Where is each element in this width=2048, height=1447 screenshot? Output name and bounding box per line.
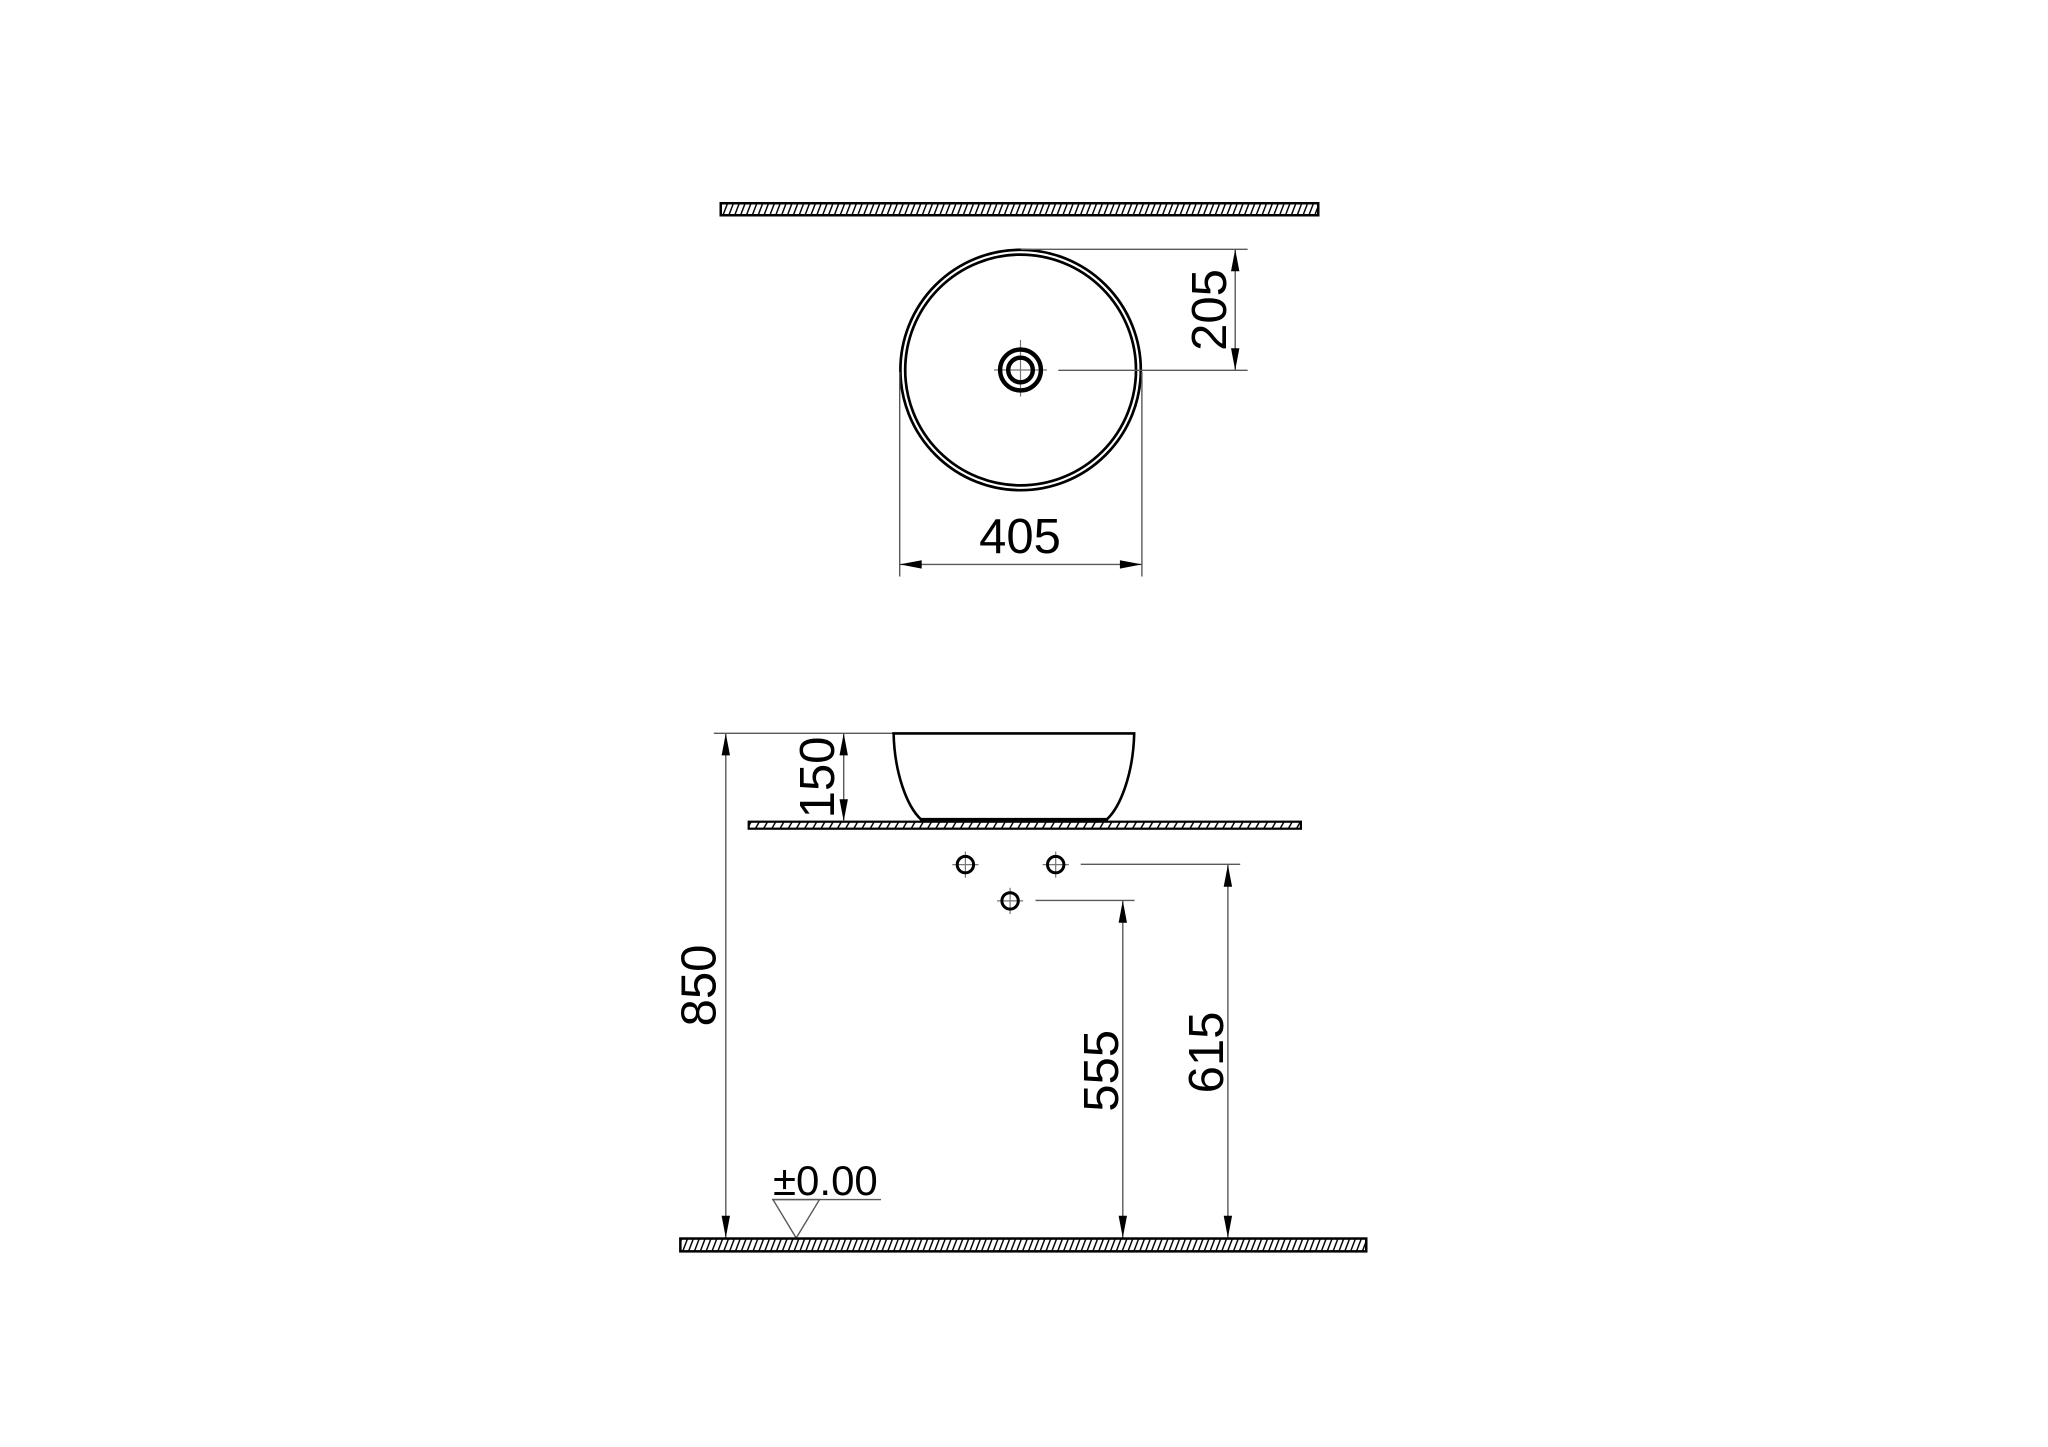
svg-text:150: 150: [791, 737, 845, 819]
svg-text:555: 555: [1075, 1030, 1129, 1112]
svg-text:±0.00: ±0.00: [773, 1157, 878, 1204]
svg-text:615: 615: [1180, 1012, 1234, 1094]
svg-text:405: 405: [979, 510, 1061, 564]
svg-text:850: 850: [672, 945, 726, 1027]
svg-text:205: 205: [1183, 269, 1237, 351]
